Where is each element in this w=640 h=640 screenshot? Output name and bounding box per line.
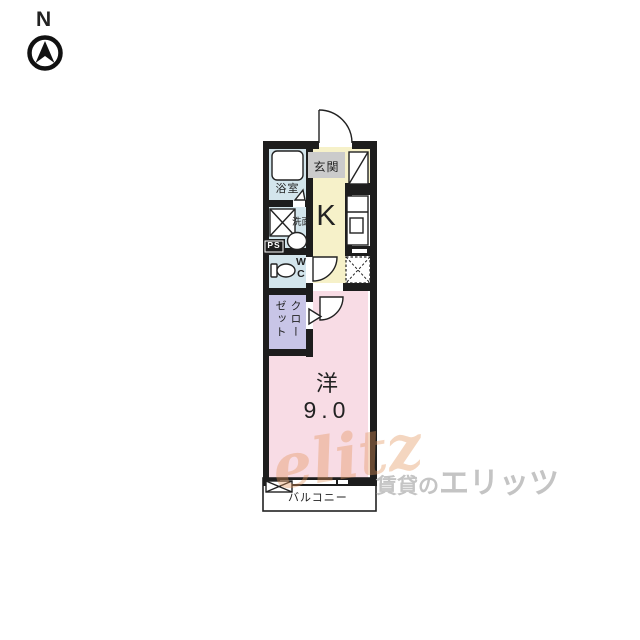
bathroom-label: 浴室 (269, 180, 306, 196)
western-room-label: 洋 (306, 366, 348, 398)
entrance-door-arc (319, 110, 352, 143)
wc-label: WC (296, 256, 306, 280)
closet-label-col1: クロー (287, 300, 303, 339)
closet-label-col2: ゼット (272, 300, 288, 339)
wc-label-line2: C (297, 268, 305, 280)
floorplan-page: N (0, 0, 640, 640)
floorplan-drawing (0, 0, 640, 640)
toilet-icon (271, 264, 295, 277)
shoe-cabinet-icon (349, 152, 368, 184)
pipe-space-label: PS (264, 240, 284, 250)
western-room-size: 9.0 (298, 397, 356, 424)
sink-icon (288, 233, 307, 250)
kitchen-label: K (307, 200, 345, 233)
balcony-label: バルコニー (288, 489, 348, 505)
bathtub-icon (272, 151, 303, 180)
refrigerator-icon (346, 257, 370, 283)
wc-label-line1: W (296, 256, 306, 268)
kitchen-counter-icon (347, 196, 368, 245)
entrance-label: 玄関 (308, 158, 345, 175)
